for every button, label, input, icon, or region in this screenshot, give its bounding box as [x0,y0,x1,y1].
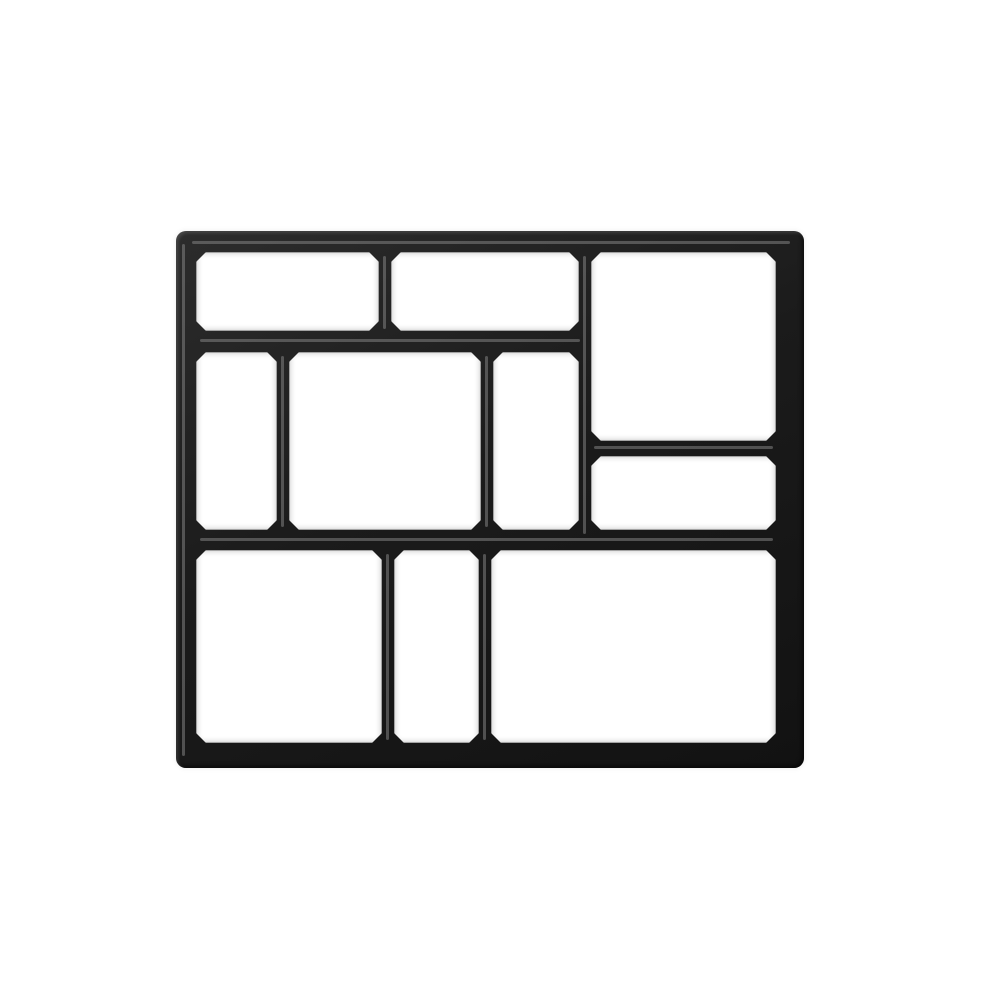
mold-cell-middle-left [196,352,277,530]
mold-cell-top-left [196,252,379,331]
wall-ridge-highlight-divider-bot-1 [386,554,389,740]
wall-ridge-highlight-divider-top-right [583,256,586,534]
wall-ridge-highlight-row-divider-upper [200,339,580,342]
mold-cell-bottom-right [491,550,776,743]
wall-ridge-highlight-top-frame-ridge [192,241,790,244]
mold-cell-right-shelf [591,456,776,530]
mold-cell-bottom-middle [394,550,479,743]
product-photo [0,0,1002,1002]
wall-ridge-highlight-divider-mid-1 [281,356,284,527]
wall-ridge-highlight-divider-top-1 [383,256,386,329]
wall-ridge-highlight-left-frame-ridge [182,244,185,756]
mold-cell-bottom-left [196,550,382,743]
mold-cell-top-right-tall [591,252,776,441]
wall-ridge-highlight-row-divider-lower [200,538,773,541]
wall-ridge-highlight-divider-bot-2 [483,554,486,740]
wall-ridge-highlight-divider-mid-2 [485,356,488,527]
mold-cell-middle-right [493,352,579,530]
paver-mold [176,231,804,768]
mold-cell-middle-center [289,352,481,530]
wall-ridge-highlight-shelf-divider-right [594,446,773,449]
mold-cell-top-middle [391,252,579,331]
